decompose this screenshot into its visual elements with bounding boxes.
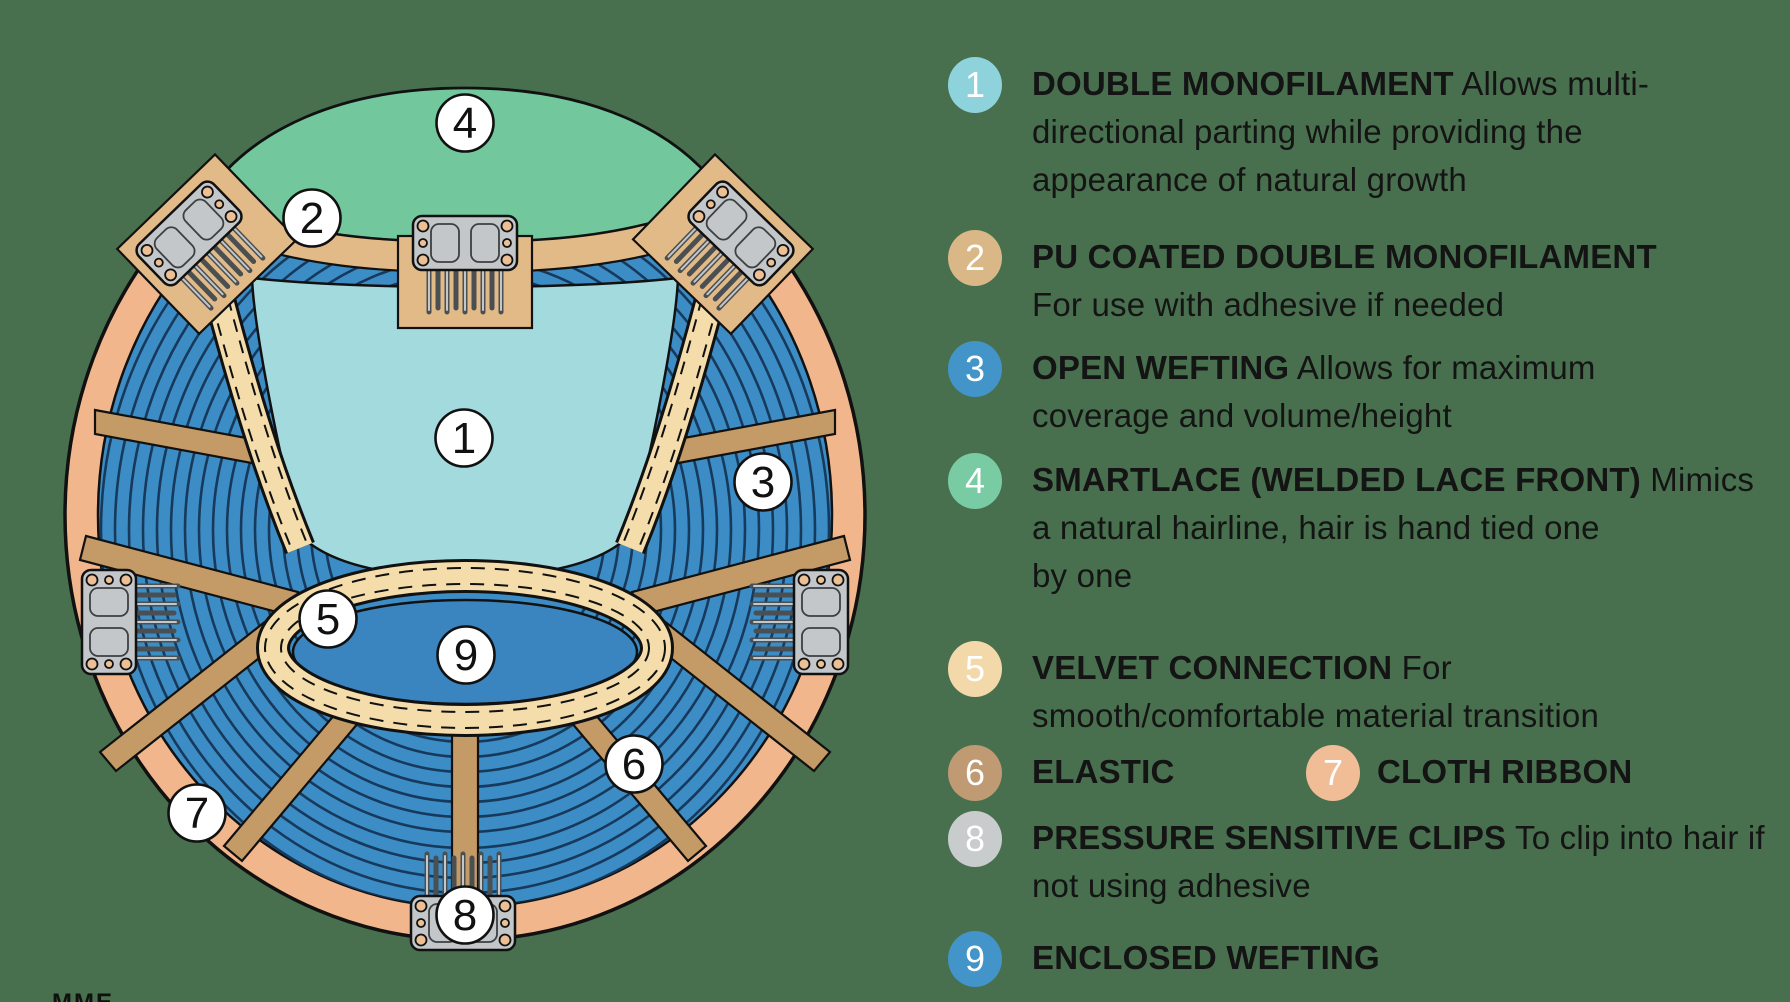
svg-text:9: 9 <box>454 631 478 680</box>
clip-top-center <box>413 216 517 312</box>
clip-mid-left <box>82 570 178 674</box>
infographic-background: 1 2 3 4 5 6 7 8 9 1 DOUBLE MONOFILAMENT … <box>0 0 1790 1002</box>
legend-badge-7: 7 <box>1306 745 1360 801</box>
legend-badge-6: 6 <box>948 745 1002 801</box>
legend-text-1: DOUBLE MONOFILAMENT Allows multi- direct… <box>1032 60 1649 204</box>
legend-text-7: CLOTH RIBBON <box>1377 748 1632 796</box>
legend-badge-7-number: 7 <box>1323 755 1343 791</box>
legend-badge-9: 9 <box>948 931 1002 987</box>
legend-badge-1-number: 1 <box>965 67 985 103</box>
svg-text:2: 2 <box>300 194 324 243</box>
legend-text-4: SMARTLACE (WELDED LACE FRONT) Mimics a n… <box>1032 456 1754 600</box>
legend-text-9: ENCLOSED WEFTING <box>1032 934 1380 982</box>
legend-badge-5-number: 5 <box>965 651 985 687</box>
clip-mid-right <box>752 570 848 674</box>
legend-badge-3: 3 <box>948 341 1002 397</box>
legend-badge-2-number: 2 <box>965 240 985 276</box>
clipped-watermark-text: MME <box>52 989 114 1002</box>
svg-text:6: 6 <box>622 740 646 789</box>
wig-cap-diagram: 1 2 3 4 5 6 7 8 9 <box>0 0 900 1002</box>
legend-badge-8-number: 8 <box>965 821 985 857</box>
legend-badge-3-number: 3 <box>965 351 985 387</box>
svg-text:4: 4 <box>453 99 477 148</box>
svg-text:8: 8 <box>453 891 477 940</box>
legend-badge-8: 8 <box>948 811 1002 867</box>
legend-badge-1: 1 <box>948 57 1002 113</box>
legend-badge-9-number: 9 <box>965 941 985 977</box>
legend-text-5: VELVET CONNECTION For smooth/comfortable… <box>1032 644 1599 740</box>
legend-badge-2: 2 <box>948 230 1002 286</box>
legend-text-8: PRESSURE SENSITIVE CLIPS To clip into ha… <box>1032 814 1765 910</box>
legend-badge-5: 5 <box>948 641 1002 697</box>
legend-text-3: OPEN WEFTING Allows for maximum coverage… <box>1032 344 1596 440</box>
svg-text:3: 3 <box>751 458 775 507</box>
svg-text:7: 7 <box>185 789 209 838</box>
legend-badge-4: 4 <box>948 453 1002 509</box>
legend-badge-6-number: 6 <box>965 755 985 791</box>
legend-badge-4-number: 4 <box>965 463 985 499</box>
svg-text:1: 1 <box>452 414 476 463</box>
svg-text:5: 5 <box>316 595 340 644</box>
legend-text-2: PU COATED DOUBLE MONOFILAMENT For use wi… <box>1032 233 1657 329</box>
legend-text-6: ELASTIC <box>1032 748 1175 796</box>
